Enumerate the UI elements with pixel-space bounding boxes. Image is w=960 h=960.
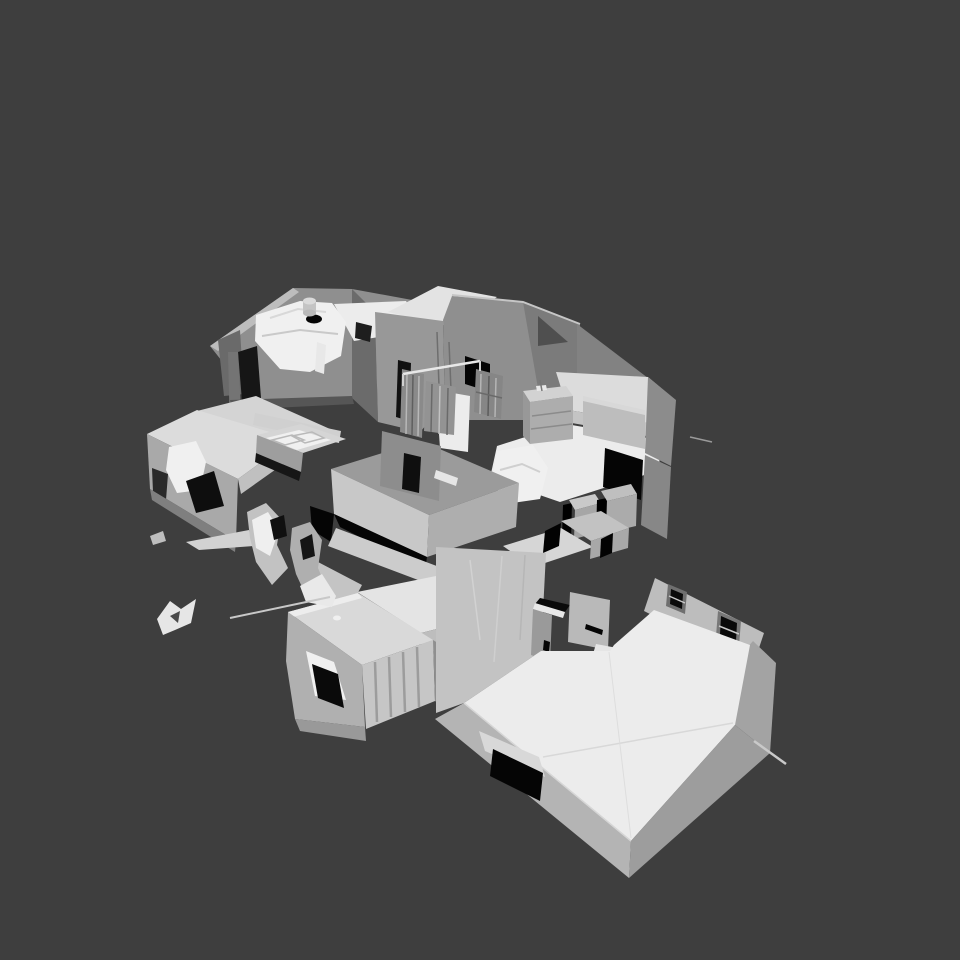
- door-panel-mesh: [568, 592, 610, 650]
- trashcan-mesh: [303, 298, 316, 317]
- 3d-viewport-canvas[interactable]: [0, 0, 960, 960]
- doorway-shadow: [238, 346, 261, 401]
- viewer-stage: [0, 0, 960, 960]
